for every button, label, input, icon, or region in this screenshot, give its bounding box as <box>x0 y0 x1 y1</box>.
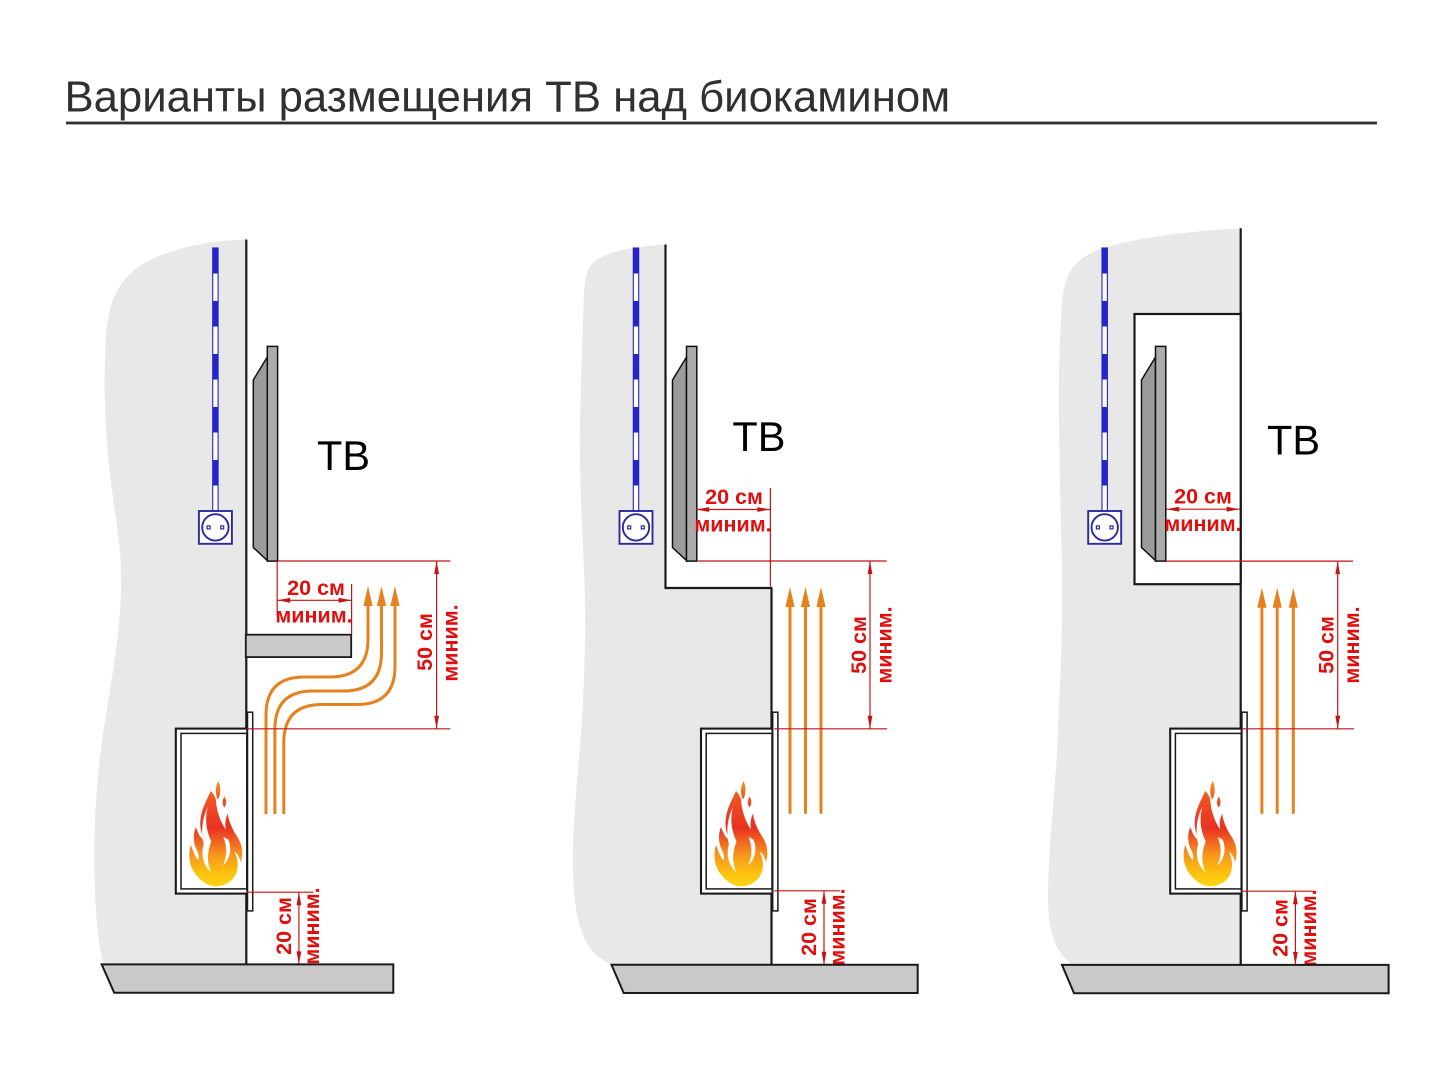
svg-text:миним.: миним. <box>439 604 463 681</box>
svg-text:миним.: миним. <box>694 513 771 537</box>
svg-text:миним.: миним. <box>872 606 896 683</box>
svg-text:20 см: 20 см <box>287 576 345 600</box>
svg-text:50 см: 50 см <box>847 616 871 674</box>
svg-text:миним.: миним. <box>1340 606 1364 683</box>
svg-text:20 см: 20 см <box>1269 899 1293 957</box>
svg-text:50 см: 50 см <box>413 613 437 671</box>
svg-text:миним.: миним. <box>825 888 849 965</box>
svg-text:ТВ: ТВ <box>732 413 785 460</box>
svg-text:миним.: миним. <box>1297 889 1321 966</box>
svg-text:ТВ: ТВ <box>317 432 370 479</box>
svg-text:20 см: 20 см <box>797 898 821 956</box>
svg-text:20 см: 20 см <box>705 485 763 509</box>
svg-text:миним.: миним. <box>1164 512 1241 536</box>
svg-text:50 см: 50 см <box>1314 616 1338 674</box>
svg-text:20 см: 20 см <box>1174 485 1232 509</box>
svg-text:ТВ: ТВ <box>1267 417 1320 464</box>
svg-text:20 см: 20 см <box>272 897 296 955</box>
svg-text:Варианты размещения ТВ над био: Варианты размещения ТВ над биокамином <box>65 72 951 121</box>
svg-text:миним.: миним. <box>300 887 324 964</box>
svg-text:миним.: миним. <box>275 603 352 627</box>
